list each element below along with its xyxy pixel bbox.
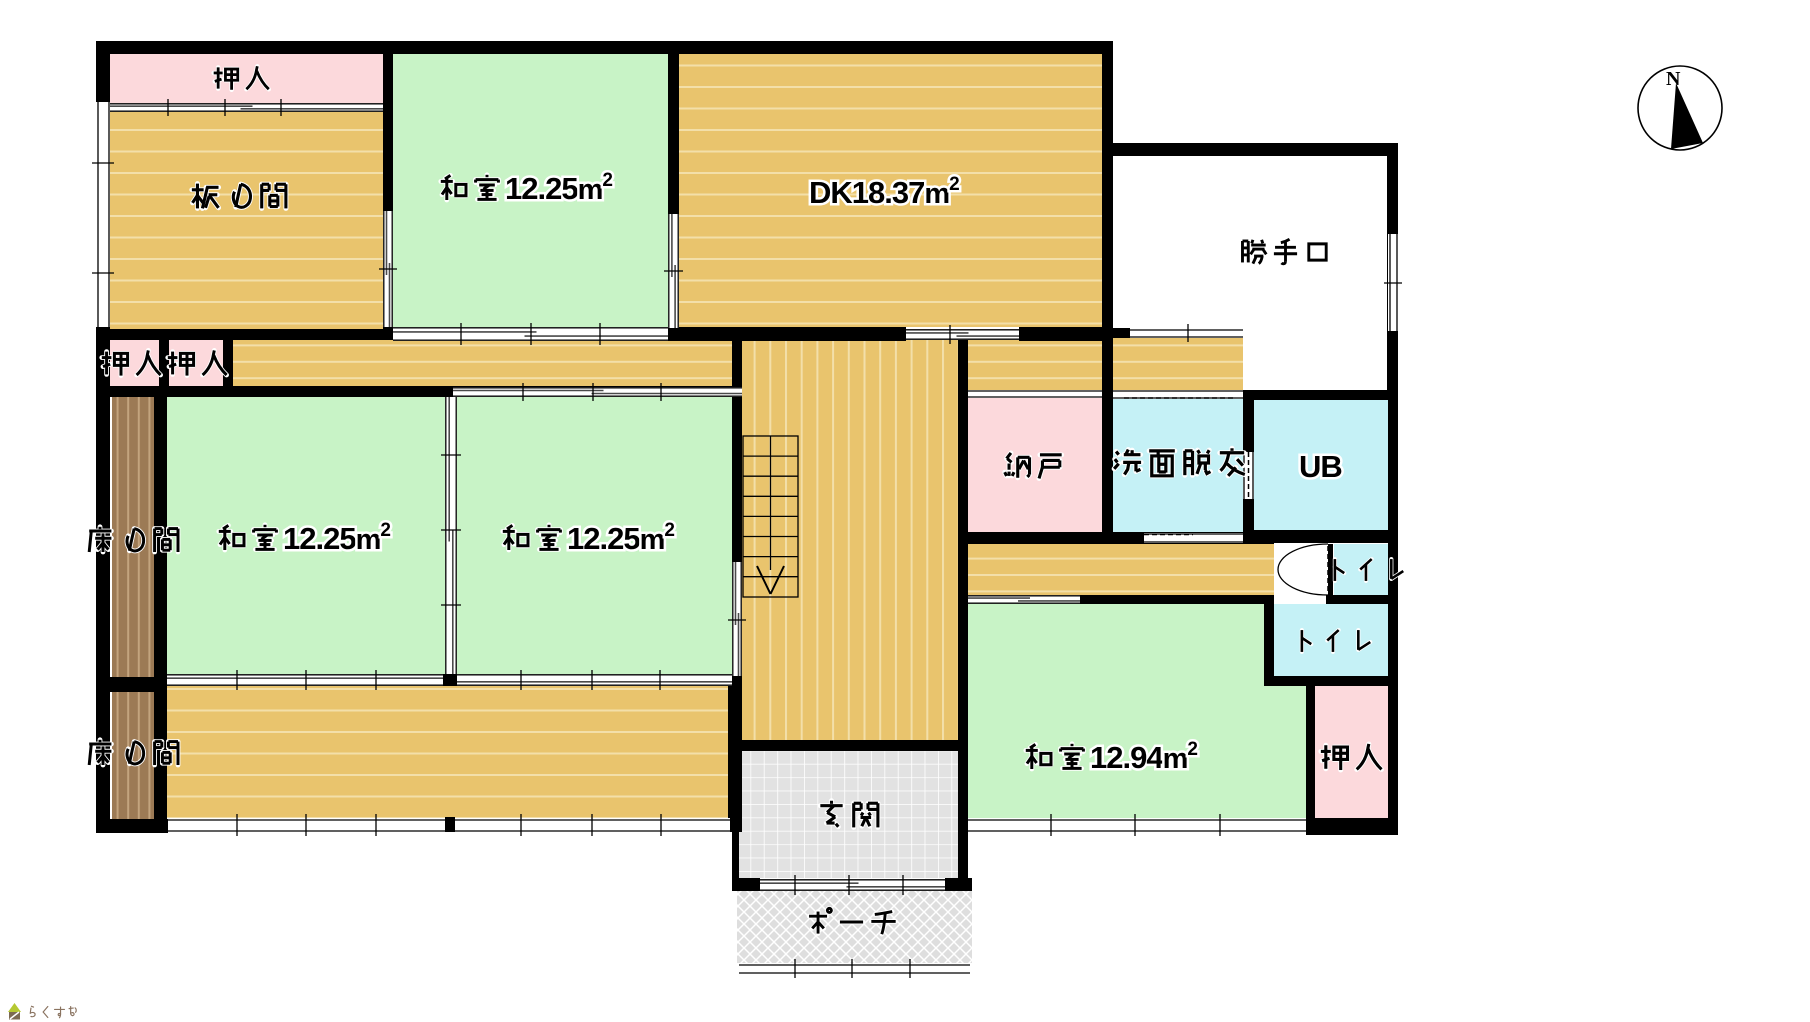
svg-text:12.25m2: 12.25m2 [567,520,674,556]
svg-text:12.25m2: 12.25m2 [283,520,390,556]
svg-text:N: N [1666,68,1681,90]
svg-text:UB: UB [1299,449,1342,484]
svg-text:12.94m2: 12.94m2 [1090,739,1197,775]
svg-text:DK18.37m2: DK18.37m2 [809,174,959,210]
svg-text:12.25m2: 12.25m2 [505,170,612,206]
